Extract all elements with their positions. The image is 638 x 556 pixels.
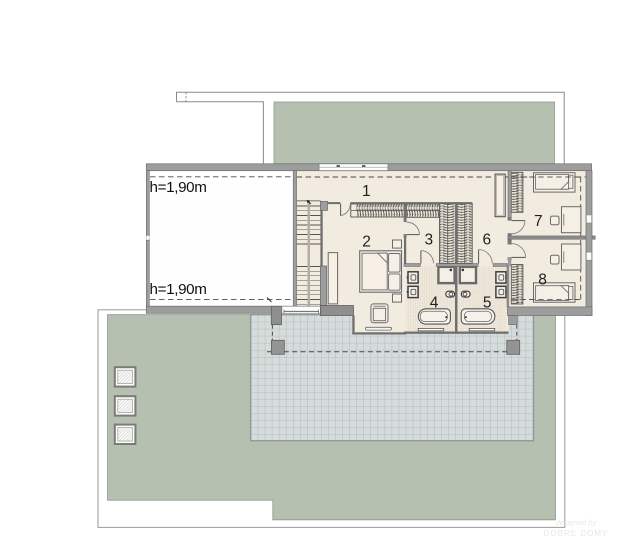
svg-text:7: 7 bbox=[534, 213, 543, 230]
svg-text:8: 8 bbox=[538, 271, 547, 288]
svg-text:1: 1 bbox=[362, 183, 371, 200]
svg-text:3: 3 bbox=[424, 231, 433, 248]
svg-text:5: 5 bbox=[483, 294, 492, 311]
svg-text:h=1,90m: h=1,90m bbox=[150, 179, 207, 196]
svg-text:6: 6 bbox=[482, 232, 491, 249]
svg-text:designed by: designed by bbox=[556, 518, 598, 527]
svg-text:h=1,90m: h=1,90m bbox=[150, 281, 207, 298]
svg-text:DOBRE DOMY: DOBRE DOMY bbox=[544, 529, 609, 538]
svg-text:4: 4 bbox=[430, 294, 439, 311]
svg-text:2: 2 bbox=[362, 233, 371, 250]
